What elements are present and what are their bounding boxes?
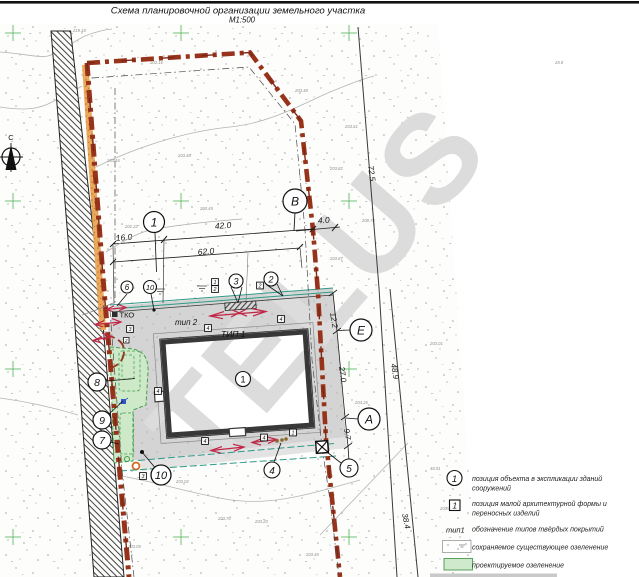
svg-text:9.7: 9.7: [342, 428, 353, 441]
svg-text:219.18: 219.18: [72, 28, 86, 33]
svg-text:3: 3: [142, 474, 145, 480]
svg-text:2: 2: [213, 287, 217, 293]
svg-text:204.26: 204.26: [354, 400, 368, 405]
svg-text:203.02: 203.02: [175, 479, 189, 484]
svg-text:4: 4: [204, 439, 207, 445]
svg-text:тип1: тип1: [446, 526, 465, 535]
svg-text:сохраняемое существующее озеле: сохраняемое существующее озеленение: [472, 545, 608, 552]
svg-text:203.05: 203.05: [127, 544, 141, 549]
svg-text:4.0: 4.0: [317, 215, 330, 226]
svg-text:проектируемое озеленение: проектируемое озеленение: [472, 563, 564, 570]
svg-text:тип 2: тип 2: [175, 318, 198, 327]
svg-text:203.16: 203.16: [106, 158, 120, 163]
svg-text:203.48: 203.48: [294, 88, 308, 93]
svg-text:3: 3: [129, 327, 132, 333]
svg-text:4: 4: [207, 326, 210, 332]
svg-text:переносных изделий: переносных изделий: [472, 510, 540, 518]
svg-text:203.20: 203.20: [254, 519, 268, 524]
svg-text:обозначение типов твёрдых покр: обозначение типов твёрдых покрытий: [472, 526, 604, 534]
svg-text:10: 10: [155, 470, 168, 482]
svg-text:203.46: 203.46: [305, 552, 319, 557]
svg-text:4: 4: [280, 317, 283, 323]
svg-text:203.01: 203.01: [429, 341, 443, 346]
svg-text:М1:500: М1:500: [229, 16, 256, 25]
svg-text:28.8: 28.8: [554, 60, 564, 65]
svg-text:48.01: 48.01: [430, 466, 440, 471]
svg-text:ТКО: ТКО: [120, 311, 135, 320]
svg-text:1: 1: [292, 431, 295, 437]
svg-text:2: 2: [258, 284, 262, 290]
svg-text:202.22: 202.22: [124, 224, 138, 229]
svg-text:3: 3: [233, 277, 238, 287]
svg-text:4: 4: [269, 466, 275, 477]
svg-text:позиция малой архитектурной фо: позиция малой архитектурной формы и: [472, 500, 607, 508]
svg-text:сооружений: сооружений: [472, 485, 511, 493]
svg-text:Е: Е: [357, 324, 366, 338]
svg-text:203.48: 203.48: [177, 153, 191, 158]
svg-text:203.45: 203.45: [199, 206, 213, 211]
svg-text:203.70: 203.70: [217, 516, 231, 521]
svg-text:42.0: 42.0: [214, 220, 231, 231]
svg-text:62.0: 62.0: [197, 246, 215, 257]
svg-text:9: 9: [99, 415, 105, 427]
svg-text:2: 2: [124, 338, 128, 343]
svg-text:позиция объекта в экспликации: позиция объекта в экспликации зданий: [472, 475, 602, 483]
svg-text:1: 1: [151, 216, 158, 230]
svg-text:6: 6: [125, 283, 130, 292]
svg-text:1: 1: [240, 375, 245, 386]
svg-text:203.61: 203.61: [344, 124, 358, 129]
svg-text:ТИП 1: ТИП 1: [221, 329, 246, 339]
svg-text:А: А: [364, 413, 373, 427]
svg-text:10: 10: [146, 283, 155, 292]
svg-text:4: 4: [157, 389, 160, 395]
svg-text:5: 5: [346, 464, 352, 475]
svg-text:8: 8: [94, 377, 100, 389]
svg-text:4: 4: [263, 436, 266, 442]
svg-text:1: 1: [452, 500, 457, 510]
svg-text:В: В: [291, 195, 299, 209]
svg-text:С: С: [8, 133, 14, 142]
svg-text:2: 2: [267, 275, 273, 285]
svg-text:1: 1: [452, 474, 457, 485]
